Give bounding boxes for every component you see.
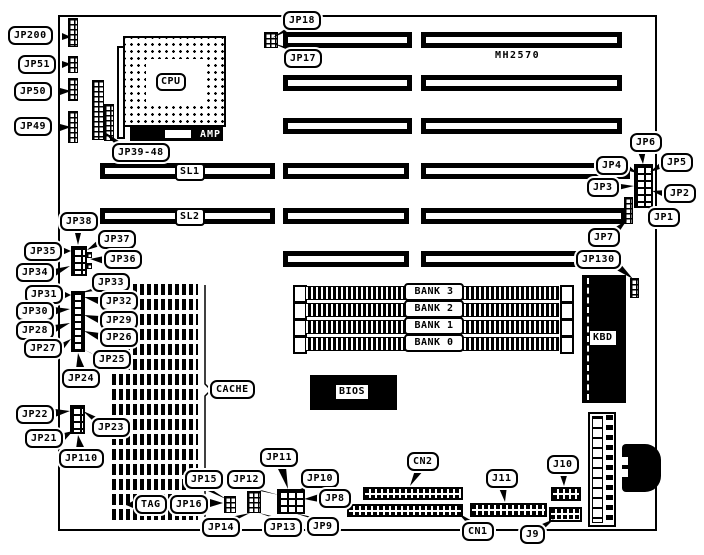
callout-cn1: CN1 bbox=[462, 522, 494, 541]
cn2-header bbox=[363, 487, 463, 500]
callout-jp11: JP11 bbox=[260, 448, 298, 467]
callout-jp26: JP26 bbox=[100, 328, 138, 347]
callout-jp27: JP27 bbox=[24, 339, 62, 358]
slot-row3-mid bbox=[283, 118, 412, 134]
jumper-jp1-jp6 bbox=[634, 164, 653, 208]
callout-jp9: JP9 bbox=[307, 517, 339, 536]
callout-jp51: JP51 bbox=[18, 55, 56, 74]
callout-j10: J10 bbox=[547, 455, 579, 474]
jumper-jp51 bbox=[68, 56, 78, 73]
callout-jp13: JP13 bbox=[264, 518, 302, 537]
callout-jp30: JP30 bbox=[16, 302, 54, 321]
slot-row1-mid bbox=[283, 32, 412, 48]
slot-row2-right bbox=[421, 75, 622, 91]
amp-label: AMP bbox=[200, 129, 221, 140]
callout-j9: J9 bbox=[520, 525, 545, 544]
callout-jp110: JP110 bbox=[59, 449, 104, 468]
callout-jp14: JP14 bbox=[202, 518, 240, 537]
sl2-label: SL2 bbox=[175, 208, 205, 226]
slot-sl2-mid bbox=[283, 208, 409, 224]
din-notch-1 bbox=[622, 457, 628, 465]
callout-jp6: JP6 bbox=[630, 133, 662, 152]
callout-jp8: JP8 bbox=[319, 489, 351, 508]
jumper-jp130 bbox=[630, 278, 639, 298]
slot-row6-mid bbox=[283, 251, 409, 267]
callout-jp4: JP4 bbox=[596, 156, 628, 175]
callout-jp3: JP3 bbox=[587, 178, 619, 197]
callout-jp33: JP33 bbox=[92, 273, 130, 292]
j9-header bbox=[549, 507, 582, 522]
slot-sl1-mid bbox=[283, 163, 409, 179]
board-model-text: MH2570 bbox=[495, 51, 540, 61]
amp-chip-window bbox=[165, 130, 191, 138]
bank3-label: BANK 3 bbox=[404, 283, 464, 301]
callout-jp39-48: JP39-48 bbox=[112, 143, 170, 162]
callout-jp28: JP28 bbox=[16, 321, 54, 340]
j10-header bbox=[551, 487, 581, 501]
callout-jp200: JP200 bbox=[8, 26, 53, 45]
kbd-chip-stripe bbox=[587, 278, 589, 400]
jumper-jp24-jp33 bbox=[71, 291, 85, 352]
callout-jp22: JP22 bbox=[16, 405, 54, 424]
callout-jp17: JP17 bbox=[284, 49, 322, 68]
jumper-jp200 bbox=[68, 18, 78, 47]
callout-jp12: JP12 bbox=[227, 470, 265, 489]
jumper-jp34-jp38 bbox=[71, 246, 87, 276]
jumper-jp17-jp18 bbox=[264, 32, 278, 48]
sl1-label: SL1 bbox=[175, 163, 205, 181]
jumper-nub-jp37 bbox=[86, 263, 92, 269]
callout-jp32: JP32 bbox=[100, 292, 138, 311]
callout-jp15: JP15 bbox=[185, 470, 223, 489]
callout-jp36: JP36 bbox=[104, 250, 142, 269]
slot-row3-right bbox=[421, 118, 622, 134]
callout-cache: CACHE bbox=[210, 380, 255, 399]
callout-jp23: JP23 bbox=[92, 418, 130, 437]
jumper-jp39-48-b bbox=[104, 104, 114, 141]
power-connector-pins-right bbox=[606, 415, 613, 526]
callout-jp37: JP37 bbox=[98, 230, 136, 249]
jumper-jp39-48-a bbox=[92, 80, 104, 140]
callout-jp38: JP38 bbox=[60, 212, 98, 231]
jumper-jp49 bbox=[68, 111, 78, 143]
callout-jp24: JP24 bbox=[62, 369, 100, 388]
bios-label: BIOS bbox=[336, 385, 368, 399]
bank0-label: BANK 0 bbox=[404, 334, 464, 352]
callout-jp49: JP49 bbox=[14, 117, 52, 136]
cn1-header bbox=[347, 504, 463, 517]
callout-jp2: JP2 bbox=[664, 184, 696, 203]
power-connector bbox=[588, 412, 616, 527]
din-notch-2 bbox=[622, 469, 628, 477]
callout-jp34: JP34 bbox=[16, 263, 54, 282]
motherboard-diagram: CPU AMP SL1 SL2 MH2570 bbox=[0, 0, 704, 555]
slot-sl2-right bbox=[421, 208, 626, 224]
j11-header bbox=[470, 503, 547, 517]
slot-row2-mid bbox=[283, 75, 412, 91]
jumper-jp15-jp16 bbox=[224, 496, 236, 513]
callout-jp21: JP21 bbox=[25, 429, 63, 448]
amp-chip: AMP bbox=[130, 127, 223, 141]
callout-cn2: CN2 bbox=[407, 452, 439, 471]
jumper-jp8-jp12 bbox=[277, 489, 305, 514]
callout-jp25: JP25 bbox=[93, 350, 131, 369]
callout-jp50: JP50 bbox=[14, 82, 52, 101]
callout-jp16: JP16 bbox=[170, 495, 208, 514]
callout-tag: TAG bbox=[135, 495, 167, 514]
keyboard-din-connector bbox=[622, 444, 661, 492]
callout-jp10: JP10 bbox=[301, 469, 339, 488]
callout-jp35: JP35 bbox=[24, 242, 62, 261]
jumper-jp50 bbox=[68, 78, 78, 101]
jumper-jp21-jp23 bbox=[70, 405, 85, 434]
callout-jp130: JP130 bbox=[576, 250, 621, 269]
bank1-label: BANK 1 bbox=[404, 317, 464, 335]
callout-jp5: JP5 bbox=[661, 153, 693, 172]
bank2-label: BANK 2 bbox=[404, 300, 464, 318]
jumper-jp7 bbox=[624, 197, 633, 224]
callout-j11: J11 bbox=[486, 469, 518, 488]
callout-jp7: JP7 bbox=[588, 228, 620, 247]
jumper-jp13-jp14 bbox=[247, 491, 261, 513]
callout-jp1: JP1 bbox=[648, 208, 680, 227]
slot-row1-right bbox=[421, 32, 622, 48]
jumper-nub-jp36 bbox=[86, 252, 92, 258]
callout-jp18: JP18 bbox=[283, 11, 321, 30]
cpu-label: CPU bbox=[156, 73, 186, 91]
kbd-label: KBD bbox=[590, 331, 616, 345]
power-connector-pins-left bbox=[592, 416, 603, 523]
